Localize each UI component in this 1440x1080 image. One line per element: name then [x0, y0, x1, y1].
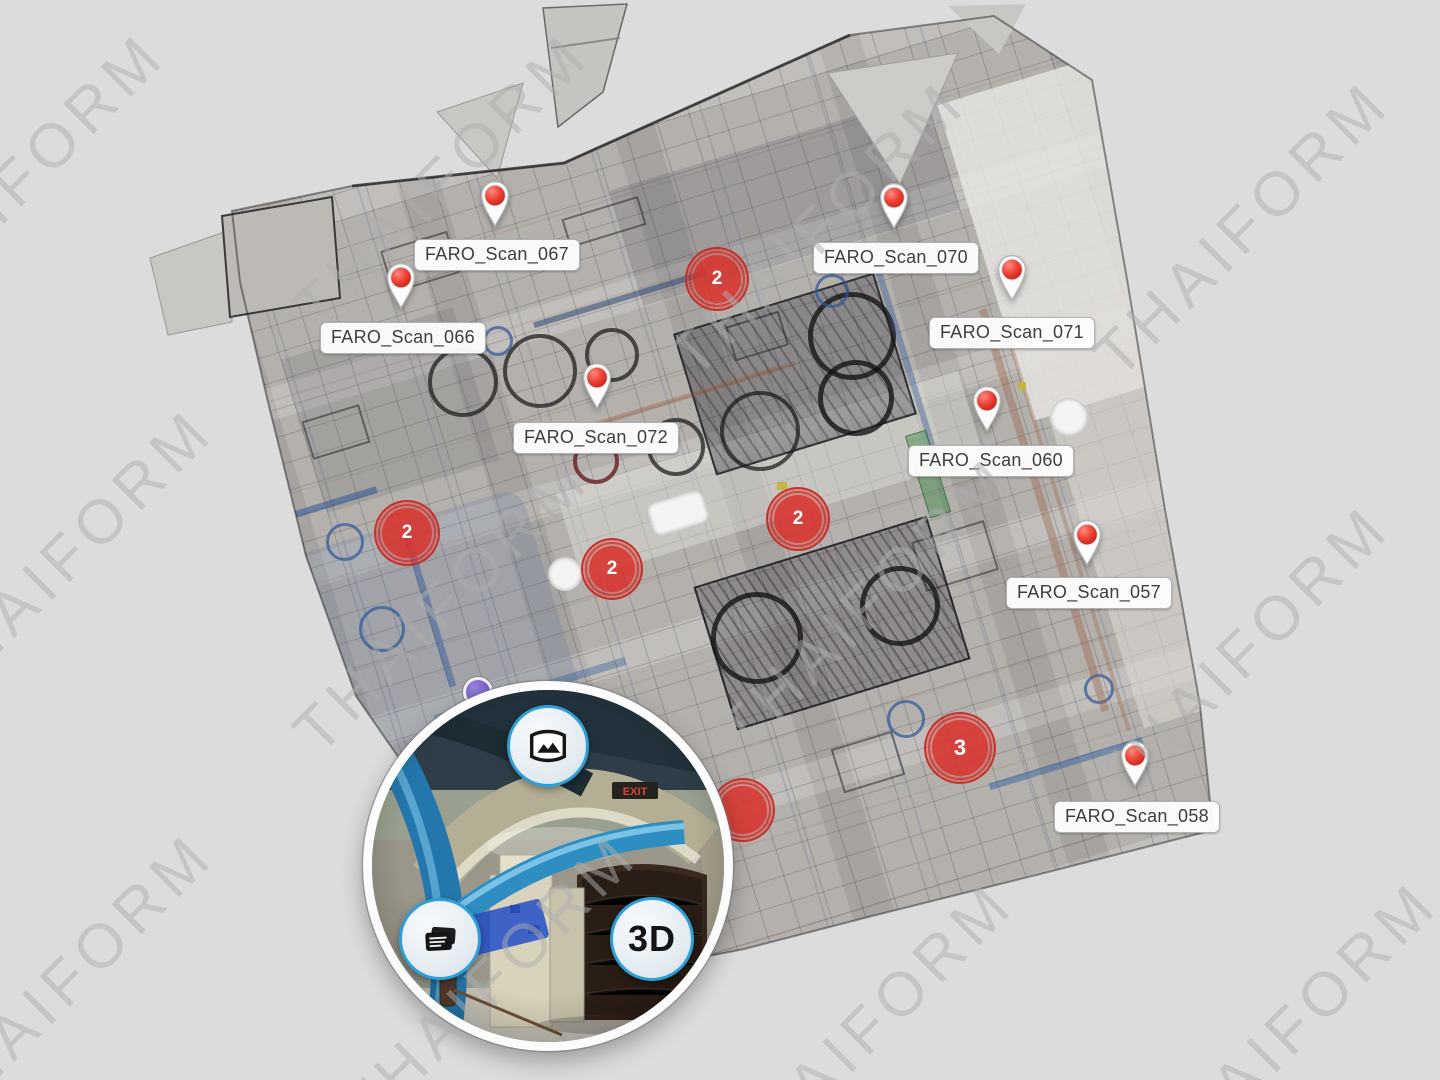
- cluster-marker[interactable]: 3: [924, 712, 996, 784]
- scan-label[interactable]: FARO_Scan_071: [929, 317, 1095, 349]
- scan-pin-FARO_Scan_057[interactable]: [1069, 518, 1105, 568]
- scan-label[interactable]: FARO_Scan_072: [513, 422, 679, 454]
- scan-label[interactable]: FARO_Scan_067: [414, 239, 580, 271]
- panorama-button[interactable]: [507, 705, 589, 787]
- scan-pin-FARO_Scan_066[interactable]: [383, 261, 419, 311]
- scan-pin-FARO_Scan_070[interactable]: [876, 181, 912, 231]
- scan-pin-FARO_Scan_072[interactable]: [579, 361, 615, 411]
- cluster-count: 2: [382, 508, 432, 558]
- scan-label[interactable]: FARO_Scan_066: [320, 322, 486, 354]
- scan-label[interactable]: FARO_Scan_070: [813, 242, 979, 274]
- scan-viewer: EXIT 3D FARO_Scan_067FARO_Scan_066FARO_S…: [0, 0, 1440, 1080]
- cluster-marker[interactable]: 2: [374, 500, 440, 566]
- cluster-count: 2: [589, 546, 635, 592]
- map-hole: [548, 557, 582, 591]
- notes-button[interactable]: [399, 898, 481, 980]
- cluster-marker[interactable]: 2: [685, 247, 749, 311]
- map-hole: [1050, 398, 1088, 436]
- scan-label[interactable]: FARO_Scan_058: [1054, 801, 1220, 833]
- scan-label[interactable]: FARO_Scan_057: [1006, 577, 1172, 609]
- scan-label[interactable]: FARO_Scan_060: [908, 445, 1074, 477]
- cluster-marker[interactable]: 2: [766, 487, 830, 551]
- view-3d-label: 3D: [628, 918, 676, 960]
- scan-pin-FARO_Scan_067[interactable]: [477, 179, 513, 229]
- notes-icon: [417, 916, 463, 962]
- cluster-count: 2: [693, 255, 741, 303]
- scan-pin-FARO_Scan_058[interactable]: [1117, 739, 1153, 789]
- scan-pin-FARO_Scan_060[interactable]: [969, 384, 1005, 434]
- cluster-count: 2: [774, 495, 822, 543]
- cluster-count: 3: [932, 720, 988, 776]
- panorama-icon: [525, 723, 571, 769]
- scan-pin-FARO_Scan_071[interactable]: [994, 253, 1030, 303]
- view-3d-button[interactable]: 3D: [610, 897, 694, 981]
- cluster-marker[interactable]: 2: [581, 538, 643, 600]
